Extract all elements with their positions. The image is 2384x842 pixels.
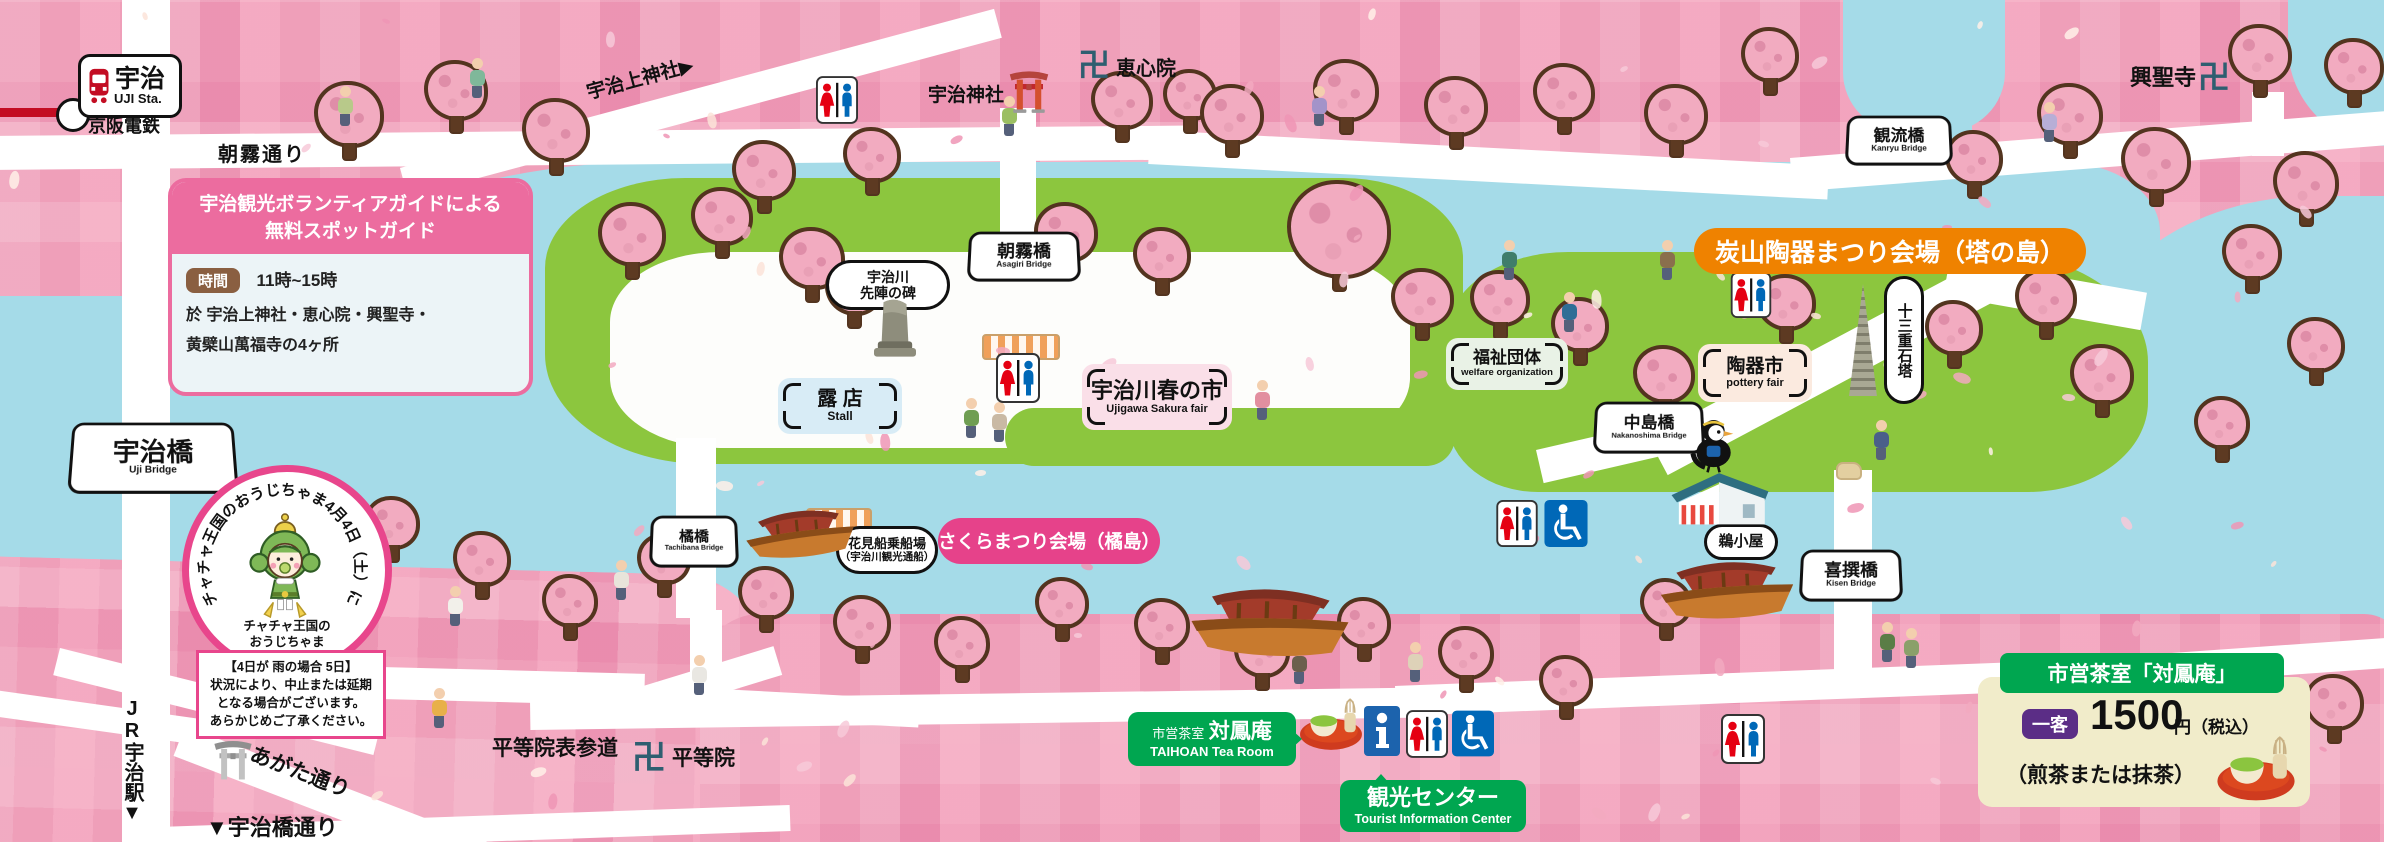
kisen-bridge-label: 喜撰橋 Kisen Bridge [1799, 550, 1904, 602]
koshoji-manji-icon: 卍 [2198, 52, 2230, 98]
sakura-tree-icon [522, 98, 590, 176]
sakura-tree-icon [2324, 38, 2384, 108]
time-value: 11時~15時 [256, 271, 337, 290]
restroom-icon-promenade [1406, 710, 1448, 758]
byodoin-manji-icon: 卍 [632, 730, 666, 779]
sakura-petal [975, 470, 986, 476]
sakura-tree-icon [1035, 577, 1089, 642]
pedestrian [1500, 240, 1518, 280]
restroom-icon-island [996, 352, 1040, 404]
station-name-en: UJI Sta. [114, 91, 162, 106]
sakura-petal [1366, 8, 1377, 22]
byodoin-label: 平等院 [672, 742, 735, 772]
kanryu-bridge-label: 観流橋 Kanryu Bridge [1845, 116, 1954, 166]
stall-label: 露 店 Stall [778, 378, 902, 434]
pedestrian [1658, 240, 1676, 280]
sakura-tree-icon [542, 574, 598, 641]
sakura-tree-icon [2304, 674, 2364, 744]
pedestrian [1872, 420, 1890, 460]
pedestrian [1560, 292, 1578, 332]
sakura-petal [1810, 55, 1830, 71]
pedestrian [1310, 86, 1328, 126]
wheelchair-icon-promenade [1452, 709, 1494, 758]
sakura-tree-icon [1200, 84, 1264, 158]
pedestrian [1253, 380, 1271, 420]
pedestrian [336, 86, 354, 126]
jr-uji-station-label: JR宇治駅▼ [118, 698, 147, 842]
sakura-petal [606, 31, 616, 47]
sakura-tree-icon [738, 566, 794, 633]
pedestrian [990, 402, 1008, 442]
sakura-tree-icon [1133, 227, 1191, 296]
restroom-icon-tonoshima [1730, 272, 1772, 318]
welfare-organization-label: 福祉団体 welfare organization [1446, 338, 1568, 390]
pagoda-label: 十三重石塔 [1884, 276, 1924, 404]
uji-station-badge: 宇治 UJI Sta. [78, 54, 182, 118]
sakura-petal [1283, 113, 1299, 134]
pedestrian [1902, 628, 1920, 668]
sakura-tree-icon [934, 616, 990, 683]
guide-box-title: 宇治観光ボランティアガイドによる 無料スポットガイド [172, 182, 529, 254]
uji-shrine-label: 宇治神社 [928, 80, 1004, 107]
rain-notice-box: 【4日が 雨の場合 5日】 状況により、中止または延期 となる場合がございます。… [196, 650, 386, 739]
sakura-tree-icon [1925, 300, 1983, 369]
cormorant-icon [1680, 414, 1742, 474]
price-value: 1500 [2090, 691, 2183, 739]
sakura-tree-icon [1287, 180, 1391, 292]
prince-mascot-icon [237, 510, 333, 620]
mascot-caption: チャチャ王国の おうじちゃま [189, 618, 385, 651]
tourist-info-bubble: 観光センター Tourist Information Center [1340, 780, 1526, 832]
sakura-tree-icon [691, 187, 753, 259]
sakura-tree-icon [1945, 130, 2003, 199]
koshoji-label: 興聖寺 [2130, 60, 2196, 92]
guide-box-body: 時間 11時~15時 於 宇治上神社・恵心院・興聖寺・ 黄檗山萬福寺の4ヶ所 [172, 254, 529, 369]
sakura-fair-label: 宇治川春の市 Ujigawa Sakura fair [1082, 364, 1232, 430]
tea-set-icon-large [2206, 731, 2306, 803]
sakura-tree-icon [2228, 24, 2292, 98]
pedestrian [1878, 622, 1896, 662]
restroom-icon-southeast [1720, 714, 1766, 764]
time-badge: 時間 [186, 268, 240, 293]
sakura-petal [382, 17, 391, 24]
sakura-tree-icon [1424, 76, 1488, 150]
volunteer-guide-box: 宇治観光ボランティアガイドによる 無料スポットガイド 時間 11時~15時 於 … [168, 178, 533, 396]
station-name-jp: 宇治 [115, 59, 165, 95]
wheelchair-icon-tachibana [1544, 500, 1588, 547]
torii-silver-icon [212, 738, 254, 782]
sakura-tree-icon [1391, 268, 1454, 341]
sakura-tree-icon [2287, 317, 2345, 386]
price-badge: 一客 [2022, 709, 2078, 739]
restroom-icon-tachibana [1494, 500, 1540, 547]
sakura-tree-icon [1539, 655, 1593, 720]
train-icon [87, 67, 111, 105]
sakura-petal [880, 433, 890, 451]
boat-icon-1 [739, 496, 861, 570]
keihan-railway-line [0, 108, 64, 117]
pedestrian [468, 58, 486, 98]
eshinin-manji-icon: 卍 [1078, 40, 1110, 86]
sakura-tree-icon [2015, 268, 2077, 340]
pedestrian [690, 655, 708, 695]
boat-icon-2 [1184, 573, 1355, 669]
sakura-tree-icon [1470, 270, 1530, 340]
pedestrian [962, 398, 980, 438]
sakura-tree-icon [1533, 63, 1595, 135]
sakura-tree-icon [2194, 396, 2250, 463]
price-note: （煎茶または抹茶） [2006, 759, 2195, 789]
sakura-tree-icon [2222, 224, 2282, 294]
sakura-tree-icon [1741, 27, 1799, 96]
pedestrian [2040, 102, 2058, 142]
pedestrian [1406, 642, 1424, 682]
guide-place-1: 於 宇治上神社・恵心院・興聖寺・ [186, 301, 515, 325]
restroom-icon-north [816, 74, 858, 126]
sakura-petal [1619, 66, 1628, 73]
eshinin-label: 恵心院 [1116, 52, 1176, 81]
taihoan-bubble: 市営茶室 対鳳庵 TAIHOAN Tea Room [1128, 712, 1296, 766]
sakura-tree-icon [1644, 84, 1708, 158]
torii-red-icon [1008, 66, 1050, 116]
sakura-petal [2063, 26, 2081, 41]
sakura-festival-banner: さくらまつり会場（橘島） [938, 518, 1160, 564]
sakura-tree-icon [833, 595, 891, 664]
guide-place-2: 黄檗山萬福寺の4ヶ所 [186, 331, 515, 355]
taihoan-price-box: 市営茶室「対鳳庵」 一客 1500 円（税込） （煎茶または抹茶） [1978, 677, 2310, 807]
sakura-tree-icon [2121, 127, 2191, 207]
tachibana-bridge-label: 橘橋 Tachibana Bridge [649, 516, 739, 568]
omotesando-label: 平等院表参道 [492, 732, 618, 762]
railway-label: 京阪電鉄 [88, 112, 160, 138]
price-box-header: 市営茶室「対鳳庵」 [2000, 653, 2284, 693]
info-icon [1364, 706, 1400, 756]
sakura-petal [1757, 139, 1770, 149]
ujibashi-street-label: ▼宇治橋通り [206, 810, 338, 842]
monument-icon [874, 296, 916, 360]
sakura-tree-icon [1438, 626, 1494, 693]
sakura-tree-icon [843, 127, 901, 196]
uji-sakura-festival-map: 宇治 UJI Sta. 京阪電鉄 朝霧通り 宇治上神社▶ 宇治神社 卍 恵心院 … [0, 0, 2384, 842]
sakura-petal [7, 170, 21, 190]
mascot-badge: チャチャ王国のおうじちゃま4月4日（土）にやってくる！ チャチャ王国の おうじち… [182, 465, 392, 675]
pedestrian [430, 688, 448, 728]
pottery-fair-label: 陶器市 pottery fair [1698, 344, 1812, 402]
sumiyama-pottery-banner: 炭山陶器まつり会場（塔の島） [1694, 228, 2086, 274]
sakura-tree-icon [598, 202, 666, 280]
boat-icon-3 [1654, 546, 1800, 631]
pedestrian [446, 586, 464, 626]
koshoji-path [2252, 92, 2284, 156]
dog [1836, 462, 1862, 480]
sakura-petal [1988, 448, 1993, 456]
asagiri-street-label: 朝霧通り [218, 138, 306, 167]
asagiri-bridge-label: 朝霧橋 Asagiri Bridge [967, 232, 1082, 282]
sakura-tree-icon [1134, 598, 1190, 665]
pedestrian [612, 560, 630, 600]
